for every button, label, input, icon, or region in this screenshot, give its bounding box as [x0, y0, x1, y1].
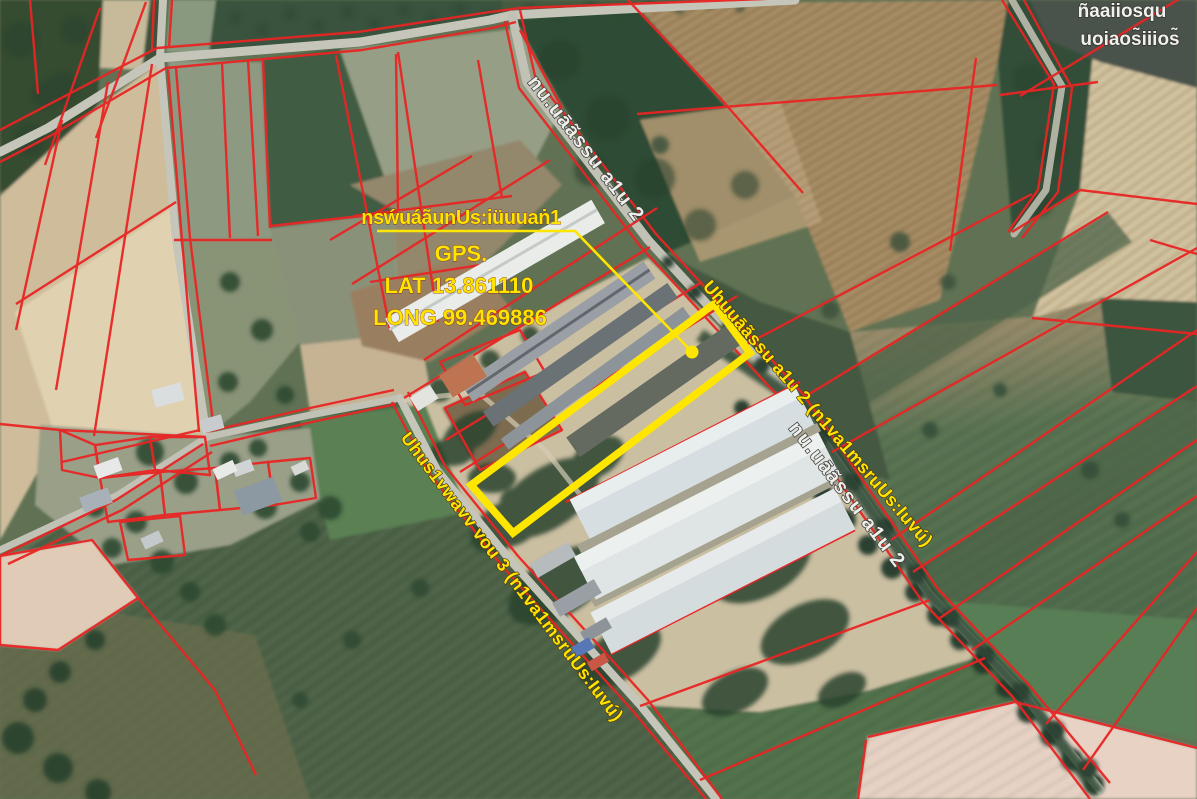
svg-text:LAT 13.861110: LAT 13.861110 [385, 273, 534, 298]
svg-text:uoiaos̃iiios̃: uoiaos̃iiios̃ [1080, 27, 1179, 50]
svg-text:LONG 99.469886: LONG 99.469886 [373, 305, 547, 330]
svg-text:ñaaiiosqu: ñaaiiosqu [1078, 1, 1167, 22]
svg-text:nsẃuáãunUs:iüuuaṅ1: nsẃuáãunUs:iüuuaṅ1 [361, 207, 561, 229]
svg-text:GPS.: GPS. [435, 241, 488, 266]
